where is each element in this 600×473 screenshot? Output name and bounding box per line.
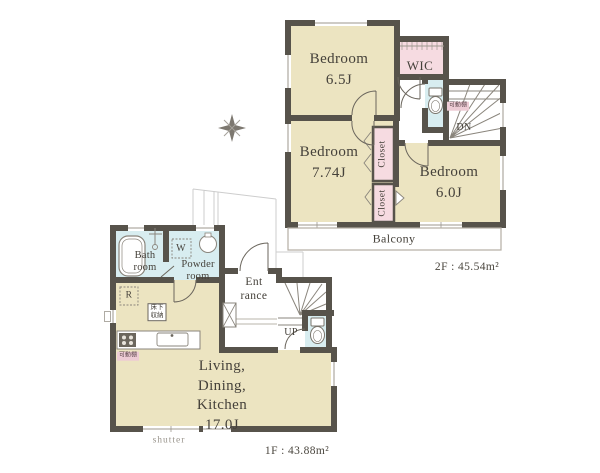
floor-plan-graphic xyxy=(0,0,600,473)
room-label-bedroom-6-0: Bedroom 6.0J xyxy=(420,162,479,204)
washer-label: W xyxy=(176,242,186,256)
door-wic xyxy=(398,77,420,99)
room-name: Dining, xyxy=(197,377,247,397)
room-name: room xyxy=(134,262,157,274)
room-label-bathroom: Bath room xyxy=(134,250,157,274)
room-label-bedroom-7-74: Bedroom 7.74J xyxy=(300,142,359,184)
closet-lower-label: Closet xyxy=(376,189,389,216)
stairs-up-label: UP xyxy=(284,326,298,340)
door-toilet-2f xyxy=(401,84,425,108)
floor-storage-label: 床下 収納 xyxy=(148,303,167,321)
kitchen-sink-icon xyxy=(157,333,188,346)
room-name: room xyxy=(181,271,214,283)
toilet-icon-1f xyxy=(311,318,325,344)
room-label-powder-room: Powder room xyxy=(181,259,214,283)
closet-upper-label: Closet xyxy=(376,140,389,167)
room-label-ldk: Living, Dining, Kitchen 17.0J xyxy=(197,357,247,435)
floor-plan: Bedroom 6.5J WIC Bedroom 7.74J Bedroom 6… xyxy=(0,0,600,473)
room-label-entrance: Ent rance xyxy=(241,276,268,304)
room-label-wic: WIC xyxy=(407,57,433,75)
movable-shelf-label-2f: 可動棚 xyxy=(447,102,469,111)
room-name: Bath xyxy=(134,250,157,262)
room-name: Ent xyxy=(241,276,268,290)
toilet-icon-2f xyxy=(429,88,443,114)
kitchen-counter-icon xyxy=(117,331,200,349)
door-entrance xyxy=(240,243,268,271)
shutter-label: shutter xyxy=(153,434,186,447)
compass-icon xyxy=(218,114,246,142)
room-label-bedroom-6-5: Bedroom 6.5J xyxy=(310,49,369,91)
room-name: Bedroom xyxy=(300,142,359,163)
room-size: 17.0J xyxy=(197,416,247,436)
room-size: 6.5J xyxy=(310,70,369,91)
balcony-label: Balcony xyxy=(373,231,416,248)
floor2-area-label: 2F : 45.54m² xyxy=(435,259,499,275)
room-name: Powder xyxy=(181,259,214,271)
shoe-cabinet-icon xyxy=(223,303,236,327)
room-name: Bedroom xyxy=(420,162,479,183)
stairs-down-label: DN xyxy=(456,121,471,135)
refrigerator-label: R xyxy=(126,289,133,302)
stove-icon xyxy=(119,333,136,347)
room-size: 7.74J xyxy=(300,163,359,184)
room-name: rance xyxy=(241,290,268,304)
room-size: 6.0J xyxy=(420,183,479,204)
movable-shelf-label-1f: 可動棚 xyxy=(117,352,139,361)
floor1-area-label: 1F : 43.88m² xyxy=(265,443,329,459)
room-name: Living, xyxy=(197,357,247,377)
casement-window-tab xyxy=(105,312,111,322)
room-name: Kitchen xyxy=(197,396,247,416)
room-name: Bedroom xyxy=(310,49,369,70)
